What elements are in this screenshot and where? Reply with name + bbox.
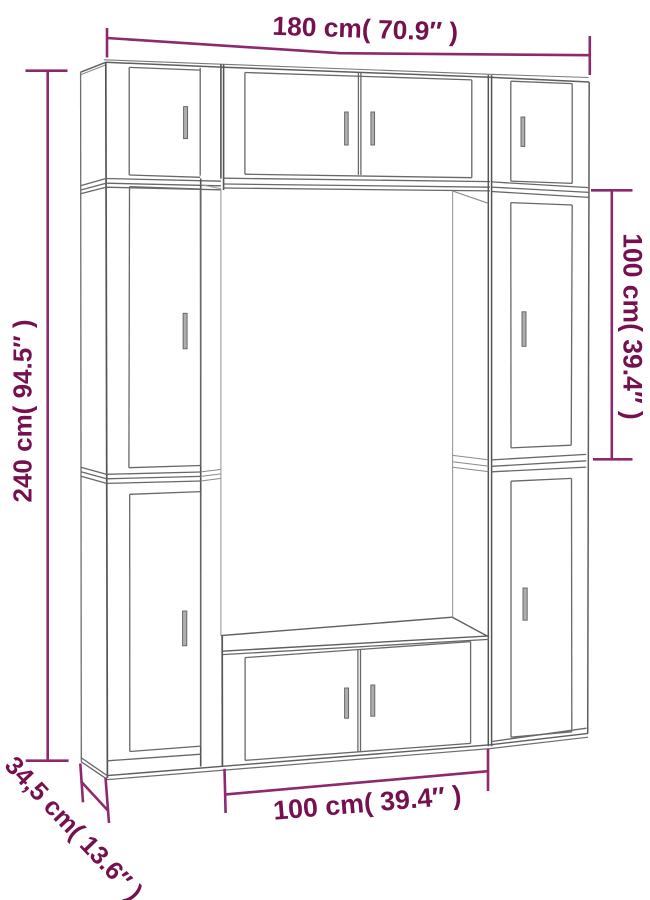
- svg-text:180 cm( 70.9″ ): 180 cm( 70.9″ ): [272, 11, 459, 47]
- svg-text:240 cm( 94.5″ ): 240 cm( 94.5″ ): [7, 319, 37, 502]
- svg-text:100 cm( 39.4″ ): 100 cm( 39.4″ ): [617, 233, 647, 420]
